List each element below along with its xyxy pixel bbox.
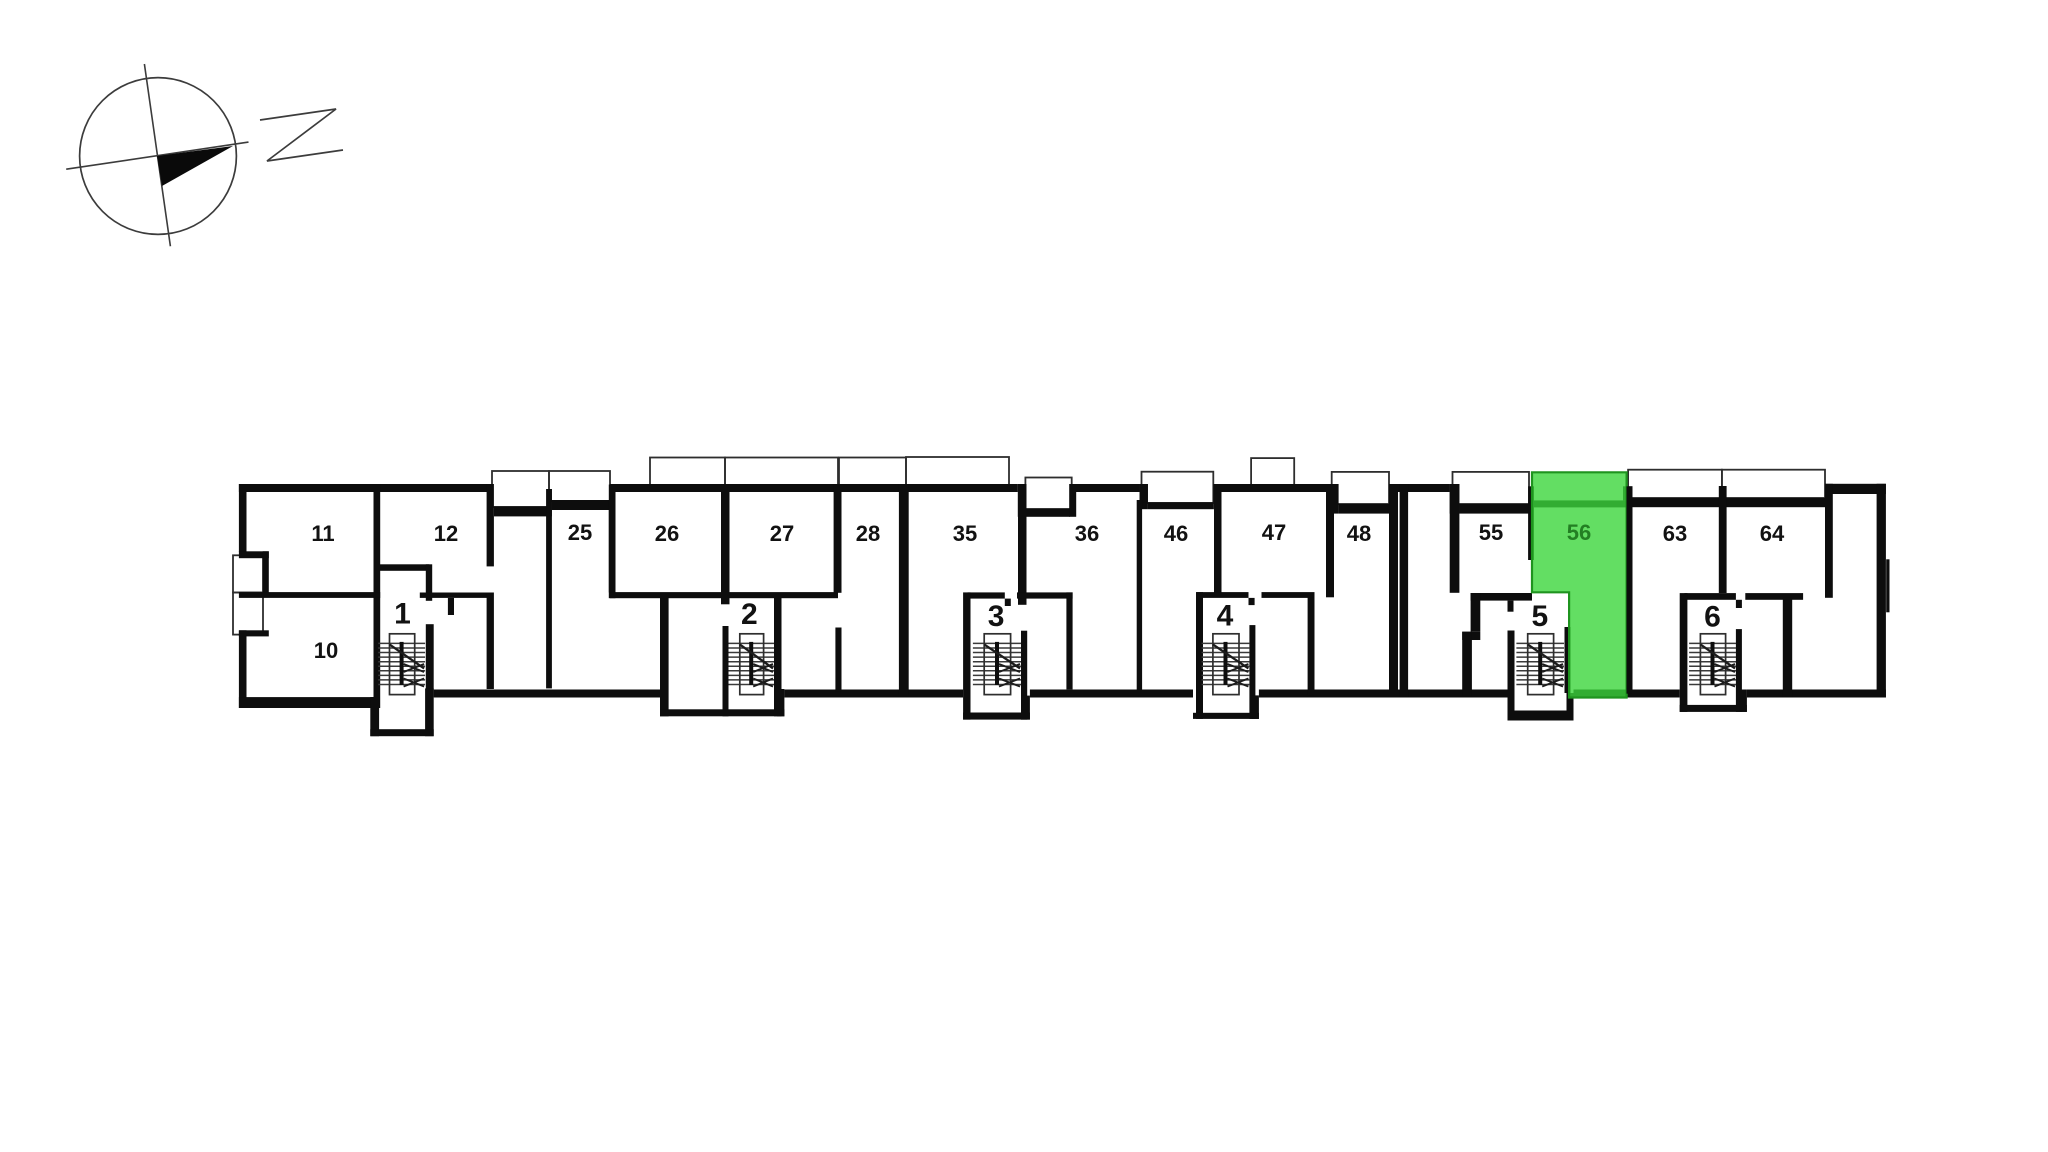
svg-text:10: 10 [314,638,338,663]
svg-text:56: 56 [1567,520,1591,545]
svg-text:4: 4 [1217,600,1234,633]
svg-text:27: 27 [770,521,794,546]
svg-text:48: 48 [1347,521,1371,546]
svg-text:5: 5 [1531,600,1548,633]
svg-text:63: 63 [1663,521,1687,546]
svg-text:2: 2 [741,598,758,631]
svg-text:3: 3 [988,600,1005,633]
svg-text:35: 35 [953,521,977,546]
svg-text:6: 6 [1704,601,1721,634]
svg-text:25: 25 [568,520,592,545]
svg-text:28: 28 [856,521,880,546]
svg-text:64: 64 [1760,521,1785,546]
svg-text:36: 36 [1075,521,1099,546]
svg-text:46: 46 [1164,521,1188,546]
svg-text:12: 12 [434,521,458,546]
svg-text:26: 26 [655,521,679,546]
svg-text:47: 47 [1262,520,1286,545]
svg-text:55: 55 [1479,520,1503,545]
svg-text:1: 1 [394,598,411,631]
svg-text:11: 11 [311,521,334,546]
